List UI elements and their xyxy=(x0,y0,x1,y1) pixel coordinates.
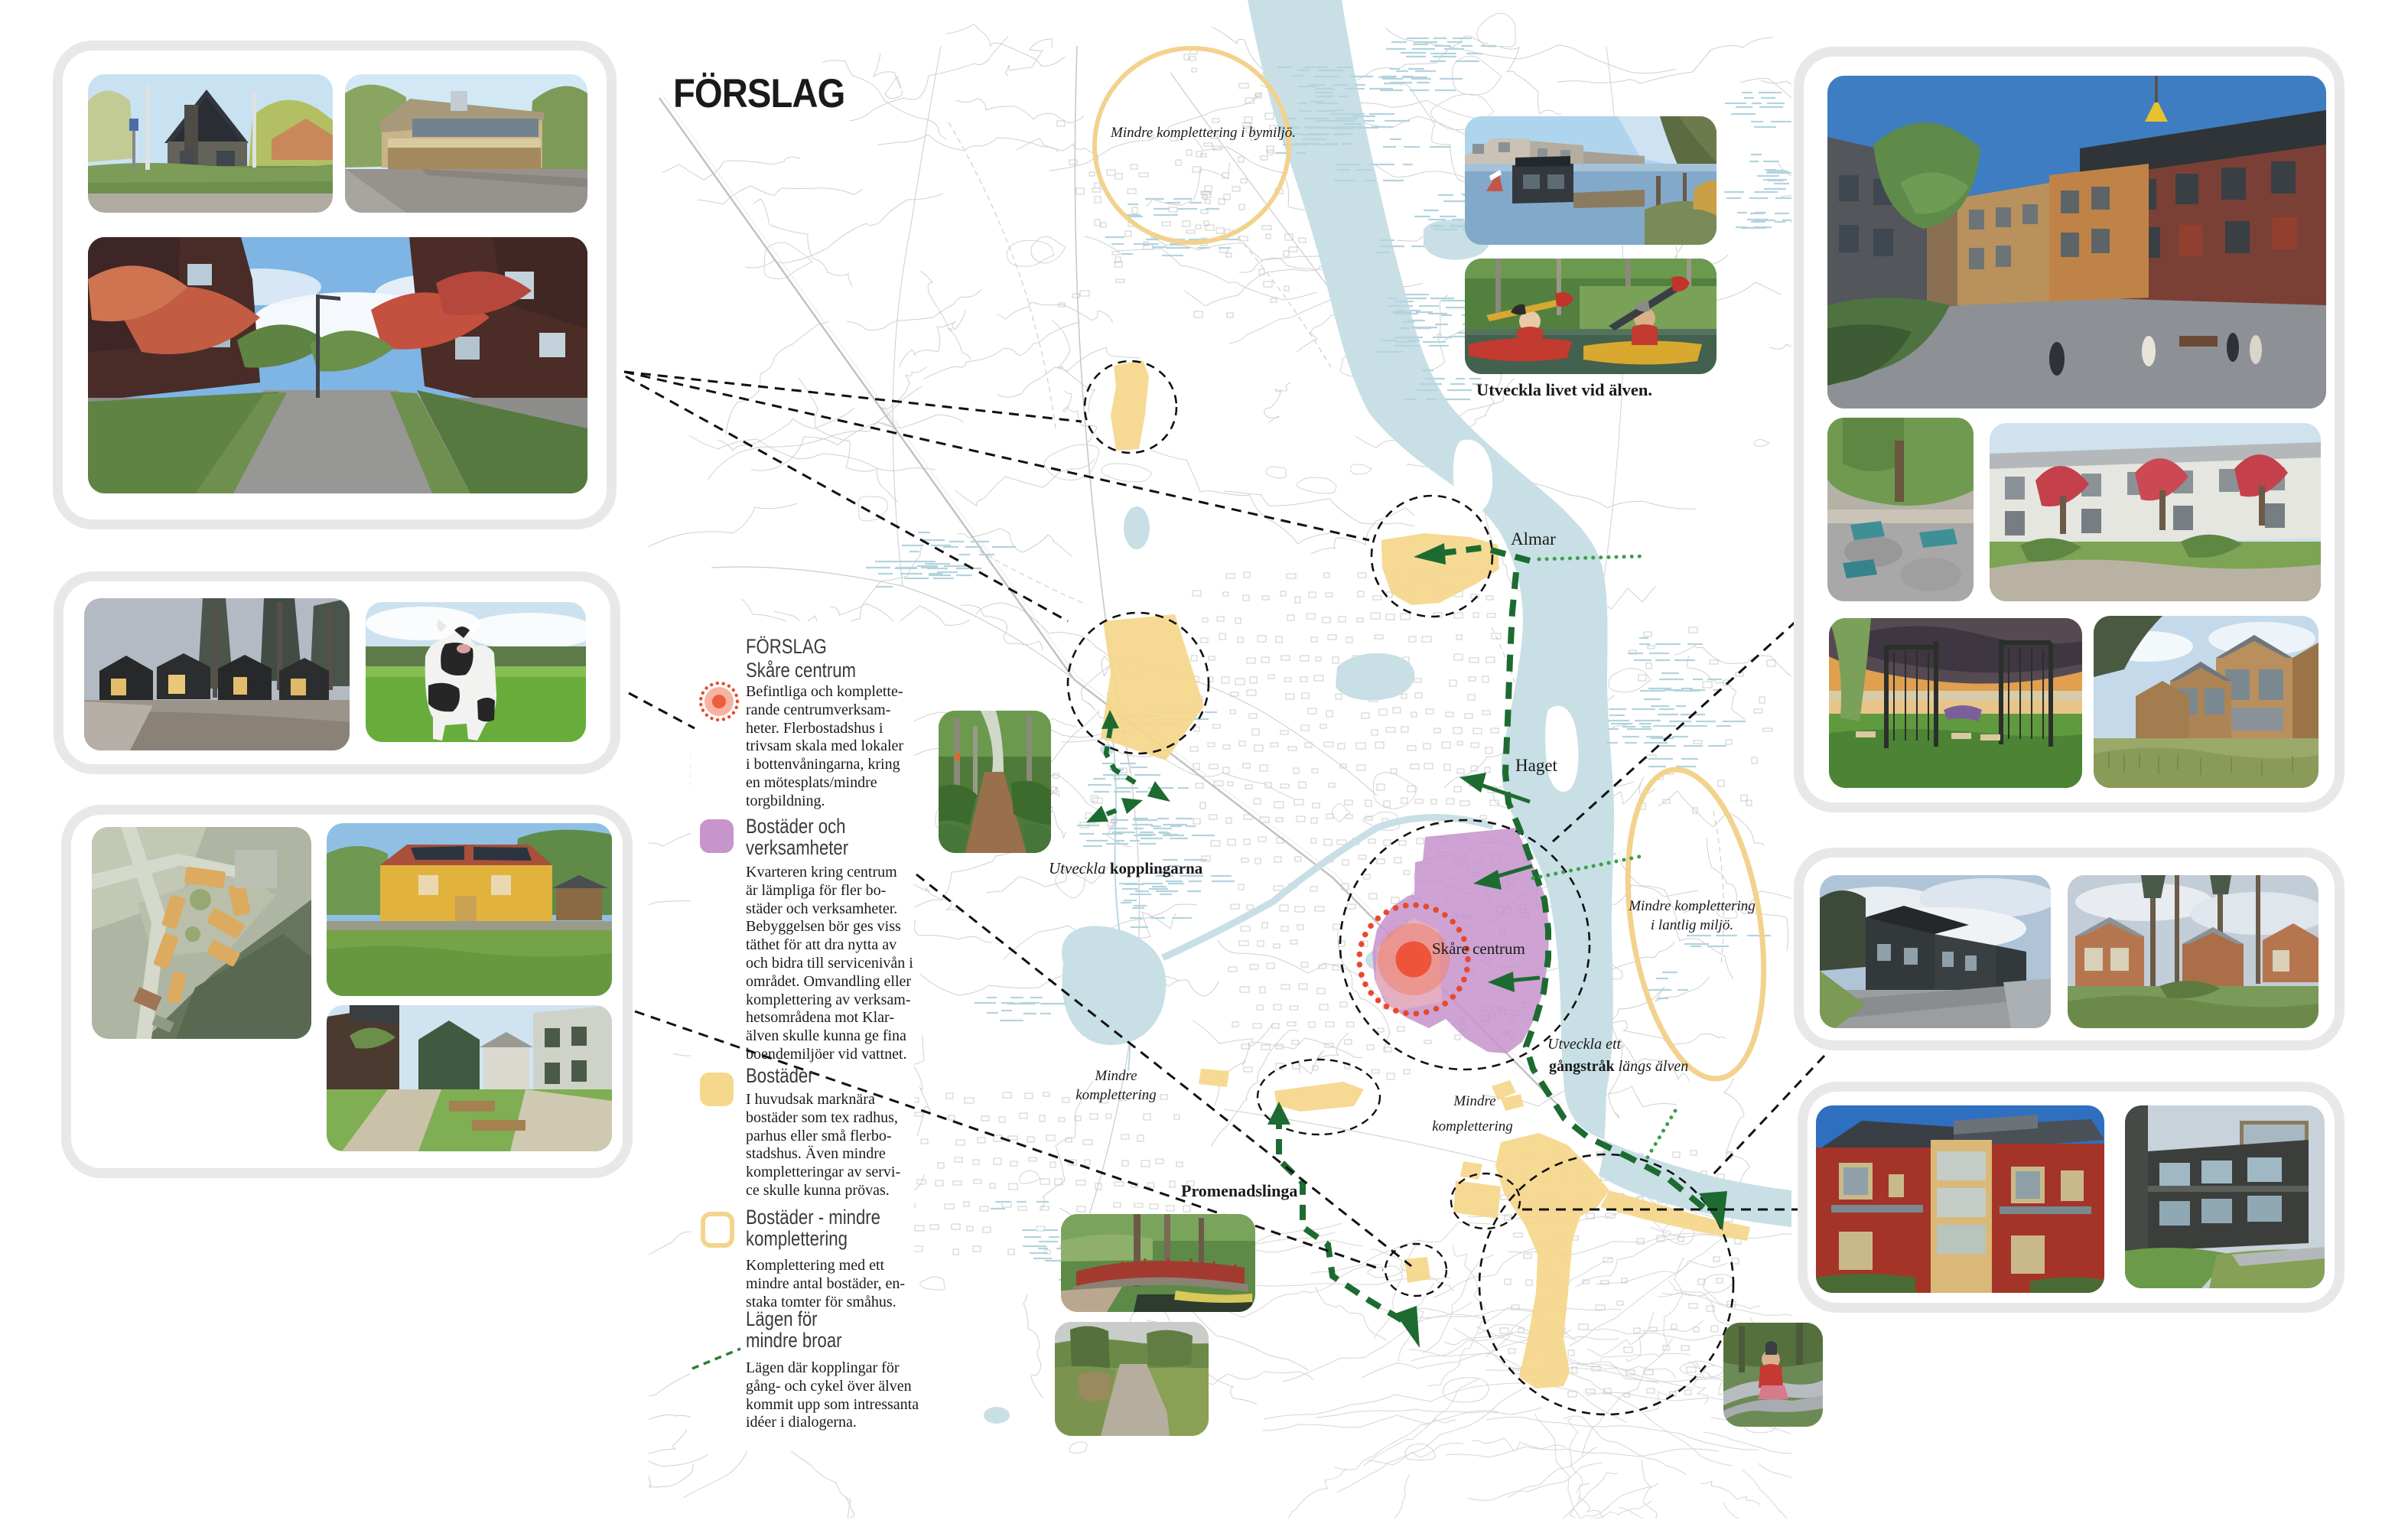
svg-text:Mindre komplettering i bymiljö: Mindre komplettering i bymiljö. xyxy=(1110,125,1296,141)
svg-text:Almar: Almar xyxy=(1511,529,1556,549)
svg-text:Utveckla kopplingarna: Utveckla kopplingarna xyxy=(1049,859,1203,877)
svg-text:Mindre: Mindre xyxy=(1094,1068,1137,1084)
svg-text:Utveckla livet vid älven.: Utveckla livet vid älven. xyxy=(1476,380,1652,399)
svg-text:gångstråk längs älven: gångstråk längs älven xyxy=(1549,1058,1688,1075)
svg-text:Mindre: Mindre xyxy=(1453,1093,1495,1109)
svg-text:komplettering: komplettering xyxy=(1432,1118,1513,1134)
svg-text:Mindre komplettering: Mindre komplettering xyxy=(1628,898,1756,914)
svg-text:Haget: Haget xyxy=(1515,756,1558,775)
svg-text:Skåre centrum: Skåre centrum xyxy=(1432,939,1525,958)
svg-text:Utveckla ett: Utveckla ett xyxy=(1547,1036,1621,1053)
svg-text:i lantlig miljö.: i lantlig miljö. xyxy=(1651,917,1733,933)
svg-text:komplettering: komplettering xyxy=(1075,1087,1157,1103)
svg-text:Promenadslinga: Promenadslinga xyxy=(1181,1181,1297,1200)
